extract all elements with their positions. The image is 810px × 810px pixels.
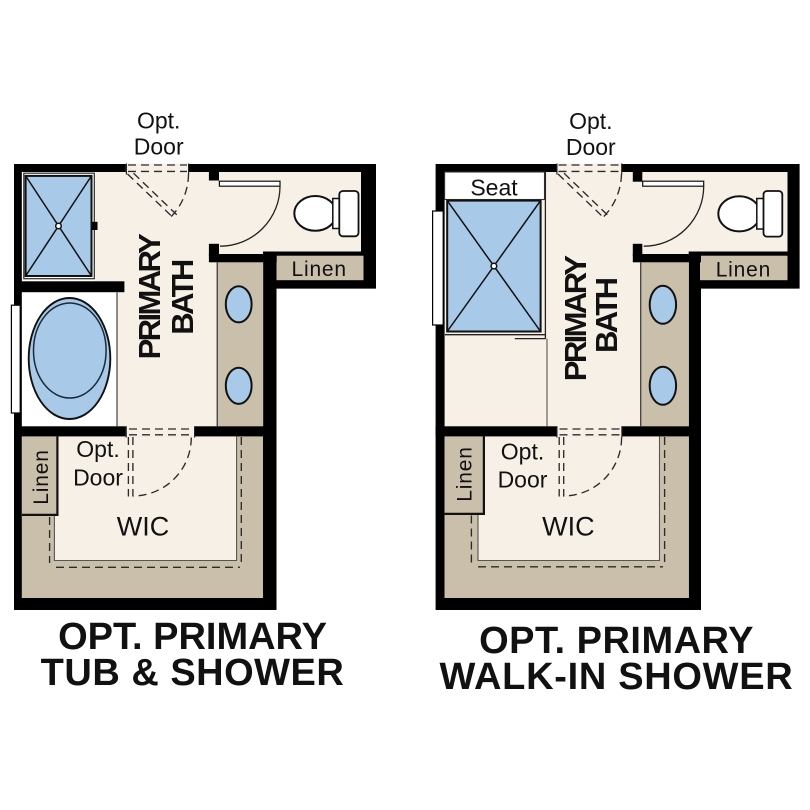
svg-text:WALK-IN SHOWER: WALK-IN SHOWER [440, 656, 794, 698]
svg-text:Seat: Seat [470, 174, 518, 200]
svg-text:Opt.: Opt. [569, 108, 612, 134]
svg-text:Door: Door [566, 134, 616, 160]
svg-text:Door: Door [134, 134, 184, 160]
svg-text:Door: Door [73, 465, 123, 491]
svg-text:Linen: Linen [292, 258, 347, 281]
svg-text:Linen: Linen [454, 446, 477, 501]
svg-text:WIC: WIC [117, 512, 169, 542]
svg-text:PRIMARY: PRIMARY [132, 233, 167, 360]
svg-text:BATH: BATH [165, 260, 200, 335]
svg-text:Linen: Linen [716, 259, 771, 282]
svg-text:Opt.: Opt. [76, 436, 119, 462]
svg-text:WIC: WIC [542, 512, 594, 542]
svg-text:TUB & SHOWER: TUB & SHOWER [41, 652, 345, 694]
svg-text:PRIMARY: PRIMARY [558, 255, 593, 382]
svg-text:Linen: Linen [30, 449, 53, 504]
svg-text:BATH: BATH [589, 278, 624, 353]
svg-text:Door: Door [498, 467, 548, 493]
svg-text:Opt.: Opt. [137, 108, 180, 134]
svg-text:Opt.: Opt. [501, 439, 544, 465]
